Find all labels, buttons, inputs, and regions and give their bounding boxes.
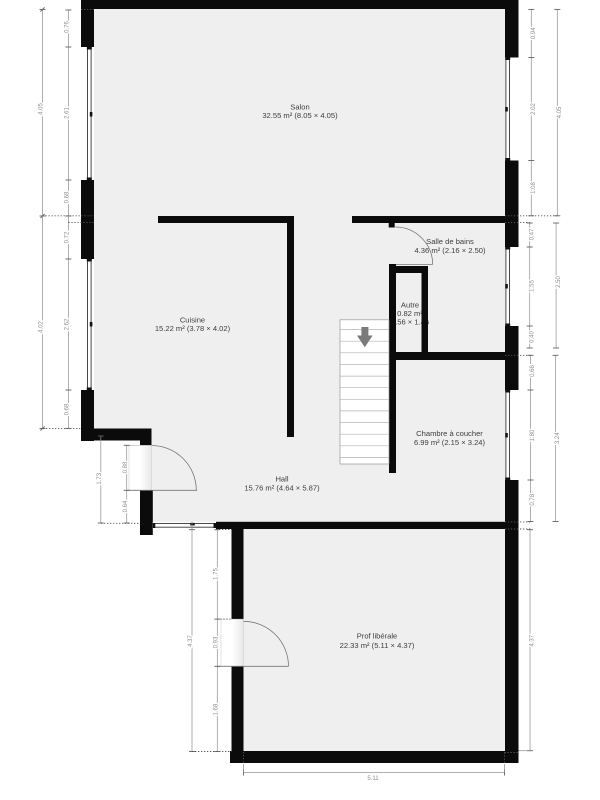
- svg-text:3.24: 3.24: [555, 432, 561, 444]
- svg-text:0.40: 0.40: [529, 331, 535, 343]
- svg-text:4.05: 4.05: [39, 103, 45, 115]
- svg-text:0.93: 0.93: [213, 636, 219, 648]
- svg-text:1.68: 1.68: [213, 703, 219, 715]
- svg-text:5.11: 5.11: [367, 776, 379, 782]
- svg-text:4.05: 4.05: [557, 106, 563, 118]
- svg-text:4.36 m² (2.16 × 2.50): 4.36 m² (2.16 × 2.50): [414, 246, 486, 255]
- svg-text:0.88: 0.88: [123, 461, 129, 473]
- svg-text:1.73: 1.73: [97, 472, 103, 484]
- svg-text:2.02: 2.02: [531, 103, 537, 115]
- svg-text:1.08: 1.08: [531, 182, 537, 194]
- svg-text:0.94: 0.94: [531, 27, 537, 39]
- svg-text:0.68: 0.68: [65, 403, 71, 415]
- svg-text:1.75: 1.75: [213, 568, 219, 580]
- svg-text:4.37: 4.37: [188, 635, 194, 647]
- svg-text:0.72: 0.72: [65, 231, 71, 243]
- svg-text:22.33 m² (5.11 × 4.37): 22.33 m² (5.11 × 4.37): [340, 641, 415, 650]
- svg-text:Prof libérale: Prof libérale: [357, 632, 398, 641]
- svg-text:0.64: 0.64: [123, 500, 129, 512]
- svg-text:Chambre à coucher: Chambre à coucher: [416, 429, 483, 438]
- svg-text:0.66: 0.66: [530, 365, 536, 377]
- svg-text:6.99 m² (2.15 × 3.24): 6.99 m² (2.15 × 3.24): [414, 438, 486, 447]
- svg-text:2.61: 2.61: [65, 107, 71, 119]
- svg-text:0.78: 0.78: [530, 493, 536, 505]
- svg-text:0.68: 0.68: [65, 191, 71, 203]
- svg-text:32.55 m² (8.05 × 4.05): 32.55 m² (8.05 × 4.05): [262, 111, 338, 120]
- svg-text:2.62: 2.62: [65, 318, 71, 330]
- svg-text:1.55: 1.55: [529, 280, 535, 292]
- svg-text:15.76 m² (4.64 × 5.87): 15.76 m² (4.64 × 5.87): [244, 483, 320, 492]
- svg-text:1.80: 1.80: [530, 429, 536, 441]
- svg-text:Hall: Hall: [275, 475, 288, 484]
- svg-text:15.22 m² (3.78 × 4.02): 15.22 m² (3.78 × 4.02): [155, 324, 231, 333]
- svg-text:0.76: 0.76: [65, 21, 71, 33]
- svg-text:4.02: 4.02: [39, 321, 45, 333]
- svg-text:Salle de bains: Salle de bains: [426, 237, 474, 246]
- svg-text:2.50: 2.50: [556, 276, 562, 288]
- svg-text:0.47: 0.47: [529, 228, 535, 240]
- svg-text:4.37: 4.37: [530, 634, 536, 646]
